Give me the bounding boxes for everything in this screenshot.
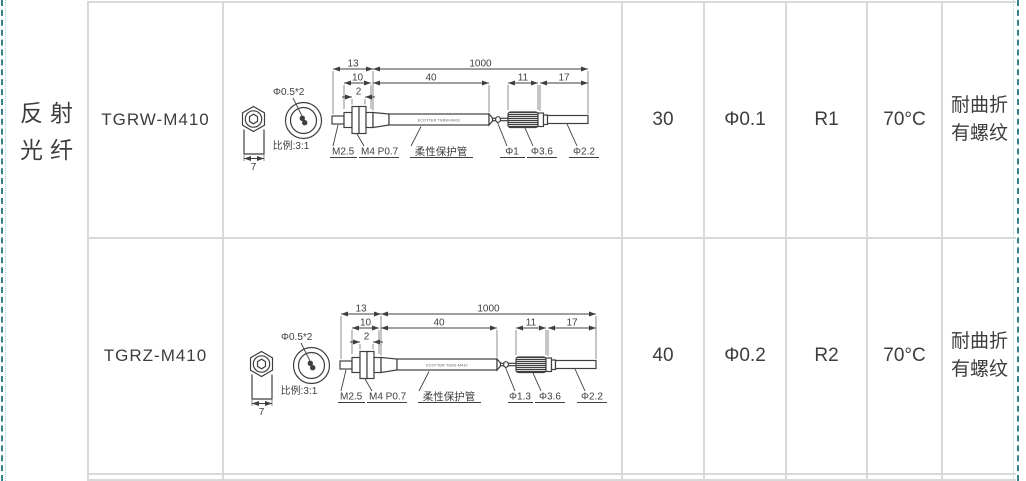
scale-label: 比例:3:1	[273, 139, 310, 152]
page-edge-right-dark	[1017, 0, 1019, 481]
knurl-diameter-label: Φ3.6	[531, 147, 553, 158]
model-cell-row1: TGRW-M410	[89, 2, 222, 237]
fiber-count-label: Φ0.5*2	[281, 332, 313, 343]
feature-cell-row2: 耐曲折 有螺纹	[943, 238, 1016, 473]
distance-cell-row1: 30	[623, 2, 703, 237]
body-thread-label: M4 P0.7	[369, 392, 407, 403]
front-thread-label: M2.5	[340, 392, 363, 403]
dim-hex-width: 7	[251, 162, 257, 173]
bend-radius-cell-row1: R1	[787, 2, 866, 237]
grid-vline-2	[222, 1, 224, 481]
category-line-2: 光纤	[20, 132, 80, 169]
rod-diameter-label: Φ2.2	[581, 392, 603, 403]
neck-diameter-label: Φ1	[505, 147, 519, 158]
extension-lines	[333, 71, 588, 114]
extension-lines	[341, 316, 596, 359]
hex-nut-view	[251, 352, 273, 407]
dimension-drawing-row1: 7 Φ0.5*2 比例:3:1 ECOTTER	[236, 42, 608, 174]
dim-head-length: 13	[347, 59, 359, 70]
category-label: 反射 光纤	[20, 95, 80, 169]
tube-print-text: ECOTTER TGRZ-M410	[426, 363, 467, 367]
temperature-cell-row1: 70°C	[868, 2, 941, 237]
dim-tube-length: 40	[433, 318, 445, 329]
dim-end-length: 17	[566, 318, 578, 329]
model-cell-row2: TGRZ-M410	[89, 238, 222, 473]
tube-label: 柔性保护管	[423, 390, 476, 403]
dim-flange-width: 2	[364, 332, 370, 343]
dim-head-length: 13	[355, 304, 367, 315]
knurl-diameter-label: Φ3.6	[539, 392, 561, 403]
tube-label: 柔性保护管	[415, 145, 468, 158]
dim-knurl-length: 11	[518, 73, 529, 84]
dimension-drawing-row2: 7 Φ0.5*2 比例:3:1 ECOTTER TGRZ-M410	[244, 287, 616, 419]
spot-cell-row1: Φ0.1	[705, 2, 785, 237]
feature-line-1: 耐曲折	[951, 328, 1008, 356]
spot-cell-row2: Φ0.2	[705, 238, 785, 473]
dim-cable-length: 1000	[469, 59, 492, 70]
rod-diameter-label: Φ2.2	[573, 147, 595, 158]
dim-tube-length: 40	[425, 73, 437, 84]
dim-thread-length: 10	[360, 318, 372, 329]
fiber-side-view	[340, 352, 596, 379]
feature-line-2: 有螺纹	[951, 356, 1008, 384]
feature-cell-row1: 耐曲折 有螺纹	[943, 2, 1016, 237]
dim-knurl-length: 11	[526, 318, 537, 329]
category-line-1: 反射	[20, 95, 80, 132]
bend-radius-cell-row2: R2	[787, 238, 866, 473]
tube-print-text: ECOTTER TGRW-M410	[418, 118, 461, 122]
fiber-datasheet-table: 反射 光纤 TGRW-M410 30 Φ0.1 R1 70°C 耐曲折 有螺纹 …	[0, 0, 1026, 481]
page-edge-left-light	[5, 0, 6, 481]
front-thread-label: M2.5	[332, 147, 355, 158]
dim-hex-width: 7	[259, 407, 265, 418]
dim-end-length: 17	[558, 73, 570, 84]
feature-line-1: 耐曲折	[951, 92, 1008, 120]
scale-label: 比例:3:1	[281, 384, 318, 397]
fiber-count-label: Φ0.5*2	[273, 87, 305, 98]
hex-nut-view	[243, 107, 265, 162]
neck-diameter-label: Φ1.3	[509, 392, 531, 403]
grid-hline-row2-bottom	[87, 473, 1016, 475]
dim-thread-length: 10	[352, 73, 364, 84]
end-face-view	[286, 98, 322, 139]
dim-flange-width: 2	[356, 87, 362, 98]
feature-line-2: 有螺纹	[951, 120, 1008, 148]
page-edge-left-dark	[1, 0, 3, 481]
distance-cell-row2: 40	[623, 238, 703, 473]
end-face-view	[294, 343, 330, 384]
dim-cable-length: 1000	[477, 304, 500, 315]
body-thread-label: M4 P0.7	[361, 147, 399, 158]
temperature-cell-row2: 70°C	[868, 238, 941, 473]
